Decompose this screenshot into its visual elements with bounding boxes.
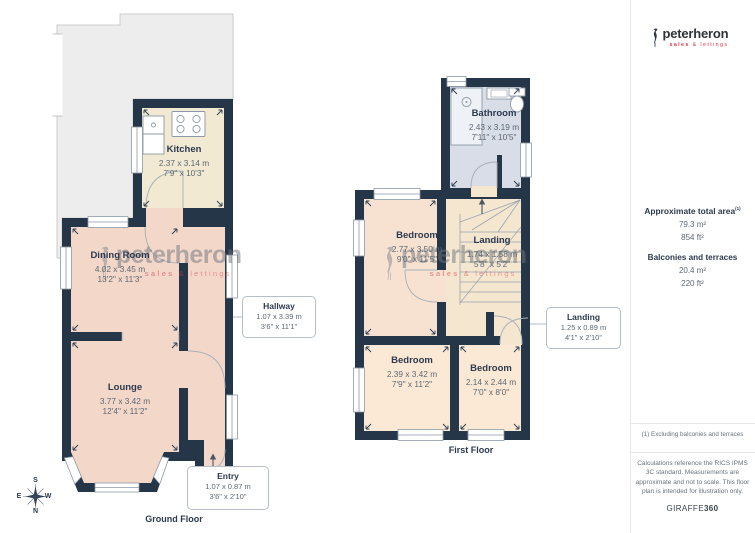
area-summary: Approximate total area(1) 79.3 m² 854 ft… xyxy=(630,206,755,288)
bathroom-sink-icon xyxy=(487,88,511,99)
room-dim-imperial: 7'11" x 10'5" xyxy=(469,132,519,143)
first-floor-title: First Floor xyxy=(449,445,494,455)
compass-letter-bottom: N xyxy=(33,508,38,515)
stove-icon xyxy=(172,112,205,137)
floorplan-page: peterheron sales & lettings peterheron s… xyxy=(0,0,755,533)
heron-logo-icon xyxy=(650,28,661,48)
dining-door-gap xyxy=(179,227,188,263)
room-dim-imperial: 4'1" x 2'10" xyxy=(547,333,620,343)
room-dim-metric: 2.14 x 2.44 m xyxy=(466,377,516,388)
dining-lounge-opening xyxy=(122,332,179,341)
compass-letter-right: W xyxy=(45,493,52,500)
room-label-lounge: Lounge 3.77 x 3.42 m 12'4" x 11'2" xyxy=(100,383,150,417)
room-dim-metric: 1.07 x 0.87 m xyxy=(188,482,268,492)
room-dim-metric: 1.07 x 3.39 m xyxy=(243,312,315,322)
room-dim-metric: 1.74 x 1.58 m xyxy=(467,249,517,260)
balconies-imperial: 220 ft² xyxy=(630,279,755,288)
disclaimer-text: Calculations reference the RICS IPMS 3C … xyxy=(634,459,751,497)
room-dim-imperial: 3'6" x 2'10" xyxy=(188,492,268,502)
hallway-floor xyxy=(188,227,225,440)
entry-door-gap xyxy=(204,440,225,449)
bay-floor xyxy=(71,452,164,483)
sidebar-divider-1 xyxy=(630,423,755,424)
room-label-landing: Landing 1.74 x 1.58 m 5'8" x 5'2" xyxy=(467,236,517,270)
room-dim-metric: 2.39 x 3.42 m xyxy=(387,369,437,380)
bedroom-right-door-gap xyxy=(500,336,522,345)
brand-logo: peterheron sales & lettings xyxy=(650,27,728,48)
room-name: Kitchen xyxy=(159,145,209,156)
room-dim-imperial: 5'8" x 5'2" xyxy=(467,259,517,270)
room-dim-metric: 1.25 x 0.89 m xyxy=(547,323,620,333)
room-dim-imperial: 3'6" x 11'1" xyxy=(243,322,315,332)
room-name: Bedroom xyxy=(392,231,442,242)
area-footnote: (1) Excluding balconies and terraces xyxy=(630,431,755,438)
giraffe360-mark: GIRAFFE360 xyxy=(630,504,755,513)
brand-tagline: sales & lettings xyxy=(663,42,729,48)
room-dim-metric: 3.77 x 3.42 m xyxy=(100,396,150,407)
brand-name: peterheron xyxy=(663,27,729,40)
sidebar-divider-2 xyxy=(630,452,755,453)
room-label-bedroom-left: Bedroom 2.39 x 3.42 m 7'9" x 11'2" xyxy=(387,356,437,390)
room-name: Landing xyxy=(467,236,517,247)
compass-letter-left: E xyxy=(17,493,22,500)
room-label-bathroom: Bathroom 2.43 x 3.19 m 7'11" x 10'5" xyxy=(469,109,519,143)
room-dim-imperial: 9'0" x 11'5" xyxy=(392,254,442,265)
room-dim-imperial: 7'9" x 10'3" xyxy=(159,168,209,179)
room-name: Bedroom xyxy=(387,356,437,367)
room-dim-metric: 4.02 x 3.45 m xyxy=(90,264,149,275)
room-label-bedroom-right: Bedroom 2.14 x 2.44 m 7'0" x 8'0" xyxy=(466,364,516,398)
room-label-bedroom-front: Bedroom 2.77 x 3.50 m 9'0" x 11'5" xyxy=(392,231,442,265)
total-area-imperial: 854 ft² xyxy=(630,233,755,242)
room-label-dining: Dining Room 4.02 x 3.45 m 13'2" x 11'3" xyxy=(90,251,149,285)
bedroom-front-floor xyxy=(364,199,437,336)
terrace-gate xyxy=(53,34,63,116)
total-area-metric: 79.3 m² xyxy=(630,220,755,229)
room-name: Entry xyxy=(188,471,268,481)
room-name: Hallway xyxy=(243,301,315,311)
room-name: Lounge xyxy=(100,383,150,394)
ground-floor-title: Ground Floor xyxy=(145,514,203,524)
room-dim-metric: 2.77 x 3.50 m xyxy=(392,244,442,255)
landing-stub-wall xyxy=(486,312,494,345)
total-area-footnote-marker: (1) xyxy=(735,206,741,211)
bedroom-front-door-gap xyxy=(437,270,446,302)
compass-letter-top: S xyxy=(33,477,38,484)
room-dim-metric: 2.37 x 3.14 m xyxy=(159,158,209,169)
bathroom-stub-wall xyxy=(497,155,502,188)
room-name: Landing xyxy=(547,312,620,322)
room-dim-imperial: 12'4" x 11'2" xyxy=(100,406,150,417)
room-name: Bedroom xyxy=(466,364,516,375)
room-label-kitchen: Kitchen 2.37 x 3.14 m 7'9" x 10'3" xyxy=(159,145,209,179)
kitchen-door-gap xyxy=(146,208,183,227)
room-dim-metric: 2.43 x 3.19 m xyxy=(469,122,519,133)
lounge-door-gap xyxy=(179,351,188,388)
room-label-entry: Entry 1.07 x 0.87 m 3'6" x 2'10" xyxy=(187,466,269,510)
total-area-label: Approximate total area(1) xyxy=(630,206,755,216)
balconies-label: Balconies and terraces xyxy=(630,253,755,262)
room-name: Bathroom xyxy=(469,109,519,120)
room-name: Dining Room xyxy=(90,251,149,262)
room-dim-imperial: 7'0" x 8'0" xyxy=(466,387,516,398)
bathroom-door-gap xyxy=(471,186,497,197)
room-label-hallway: Hallway 1.07 x 3.39 m 3'6" x 11'1" xyxy=(242,296,316,338)
room-dim-imperial: 7'9" x 11'2" xyxy=(387,379,437,390)
balconies-metric: 20.4 m² xyxy=(630,266,755,275)
room-label-landing-small: Landing 1.25 x 0.89 m 4'1" x 2'10" xyxy=(546,307,621,349)
room-dim-imperial: 13'2" x 11'3" xyxy=(90,274,149,285)
